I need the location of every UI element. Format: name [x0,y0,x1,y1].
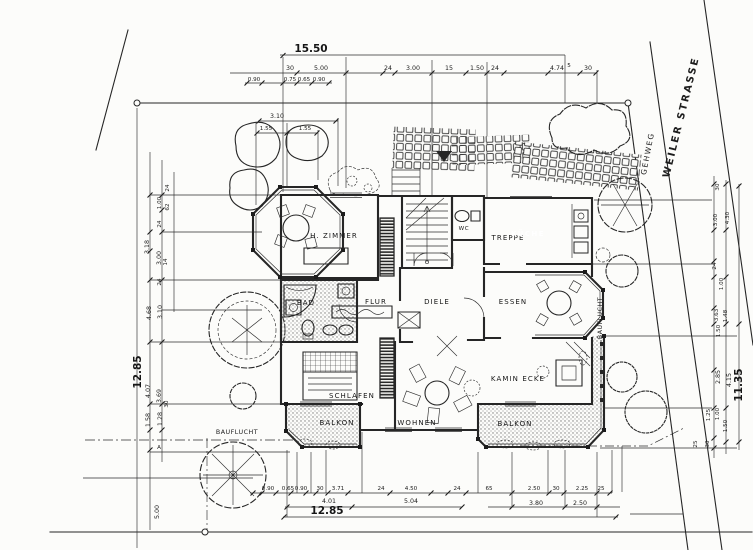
dim: 1.00 [719,277,725,290]
dim: 14 [163,258,169,266]
room-label-flur: FLUR [365,298,387,306]
tree-left-large [209,292,285,368]
dim: 5.00 [154,505,161,519]
chimney-block-lower [380,338,394,398]
dim: 30 [164,400,170,408]
room-label-bad: BAD [297,299,315,307]
wc-fixture [455,211,480,222]
hedge-band [392,127,641,191]
entrance-steps [392,168,420,195]
dim-right-total: 11.35 [733,368,745,401]
essen-table-set [536,280,582,326]
dim: 24 [453,486,461,492]
entry-double-door [414,253,453,266]
boundary-corner-marker [625,100,631,106]
dim: 4.50 [405,486,418,492]
chimney-block-upper [380,218,394,276]
dim: 0.90 [295,486,308,492]
dim: 4.74 [550,65,564,72]
building-line-label-bottom: BAUFLUCHT [216,429,258,436]
dim: 0.65 [282,486,295,492]
wohnen-table-set [403,364,480,424]
kueche-door-opening [500,258,526,269]
dim: 24 [384,65,392,72]
bush-right-mid [606,255,638,287]
dim: 24 [157,220,163,228]
dim: 30 [715,183,721,191]
dim-top-total: 15.50 [294,43,327,55]
dim: 2.50 [528,486,541,492]
room-label-schlafen: SCHLAFEN [329,392,375,400]
dim: 15 [445,65,453,72]
floor-plan-sheet: H. ZIMMER TREPPE WC KÜCHE BAD FLUR DIELE… [0,0,753,550]
dim: 1.58 [145,413,152,427]
room-label-diele: DIELE [424,298,450,306]
dim: 3.00 [713,213,719,226]
dim: 1.50 [716,324,722,337]
building-line-label-right: BAUFLUCHT [597,297,604,339]
dimension-labels: 15.50 30 5.00 24 3.00 15 1.50 24 4.74 5 … [132,43,745,519]
room-label-wc: WC [459,226,470,232]
dim: 24 [157,278,163,286]
dim: 3.18 [144,240,151,254]
dim: 0.75 [284,77,297,83]
dim: 3.71 [332,486,345,492]
dim: 0.90 [262,486,275,492]
dim: 30 [552,486,560,492]
dim: 3.00 [156,251,163,265]
dim: 1.55 [299,126,312,132]
dim: 3.10 [270,113,284,120]
boundary-corner-marker [202,529,208,535]
dim: 65 [485,486,493,492]
dim: 62 [165,203,171,210]
dim: 4.07 [145,384,152,398]
dim: 1.48 [723,309,729,322]
dim: 1.00 [715,407,721,420]
room-label-wohnen: WOHNEN [397,419,436,427]
house-plan [251,168,606,450]
room-label-kamin-ecke: KAMIN ECKE [491,375,545,383]
dim-left-total: 12.85 [132,355,144,388]
dim: 5 [567,63,571,69]
dim: 1.00 [157,196,163,209]
property-boundaries [50,0,753,550]
dim: 3.80 [529,500,543,507]
dim: 24 [491,65,499,72]
dim: 0.65 [298,77,311,83]
dim: 3.00 [406,65,420,72]
room-label-essen: ESSEN [499,298,527,306]
sidewalk-label: GEHWEG [639,131,656,175]
dim-bottom-total: 12.85 [310,505,343,517]
dim: 5.00 [314,65,328,72]
tree-bottom-right-small [607,362,637,392]
dim: 25 [597,486,605,492]
room-label-kueche: KÜCHE [511,229,545,238]
room-label-balkon-right: BALKON [497,420,532,428]
dim: 30 [705,440,711,448]
essen-bay [533,272,603,338]
dim: 3.63 [714,308,720,321]
room-label-hzimmer: H. ZIMMER [310,232,358,240]
dim: 24 [377,486,385,492]
stair-treads [406,198,448,264]
dim: 3.10 [157,305,164,319]
plants-front-of-house [328,166,379,195]
dim: 2.85 [715,370,722,384]
section-marker: A [157,445,161,451]
tree-bottom-right-large [625,391,667,433]
kitchen-appliances [572,204,588,258]
dim: 4.30 [725,211,731,224]
boundary-corner-marker [134,100,140,106]
tree-bottom-left [200,442,266,508]
dim: 25 [693,440,699,448]
dim: 1.25 [706,408,712,421]
dim: 4.15 [726,373,733,387]
dim: 24 [712,262,718,270]
dim: 1.28 [157,412,164,426]
dim: 4.68 [146,306,153,320]
dim: 24 [165,184,171,192]
dim: 4.01 [322,498,336,505]
dim: 1.55 [260,126,273,132]
dim: 30 [316,486,324,492]
dim: 2.50 [573,500,587,507]
dim: 2.25 [576,486,589,492]
dim: 0.90 [313,77,326,83]
room-label-balkon-left: BALKON [319,419,354,427]
bush-left-small [230,383,256,409]
site-plan-drawing: H. ZIMMER TREPPE WC KÜCHE BAD FLUR DIELE… [0,0,753,550]
dim: 3.69 [156,389,163,403]
dim: 30 [286,65,294,72]
dim: 1.50 [470,65,484,72]
bush-right-small [596,248,610,262]
street-name-label: WEILER STRASSE [661,56,702,179]
dim: 0.90 [248,77,261,83]
dim: 30 [584,65,592,72]
dim: 5.04 [404,498,418,505]
rocks [230,122,329,210]
dim: 1.50 [723,419,729,432]
